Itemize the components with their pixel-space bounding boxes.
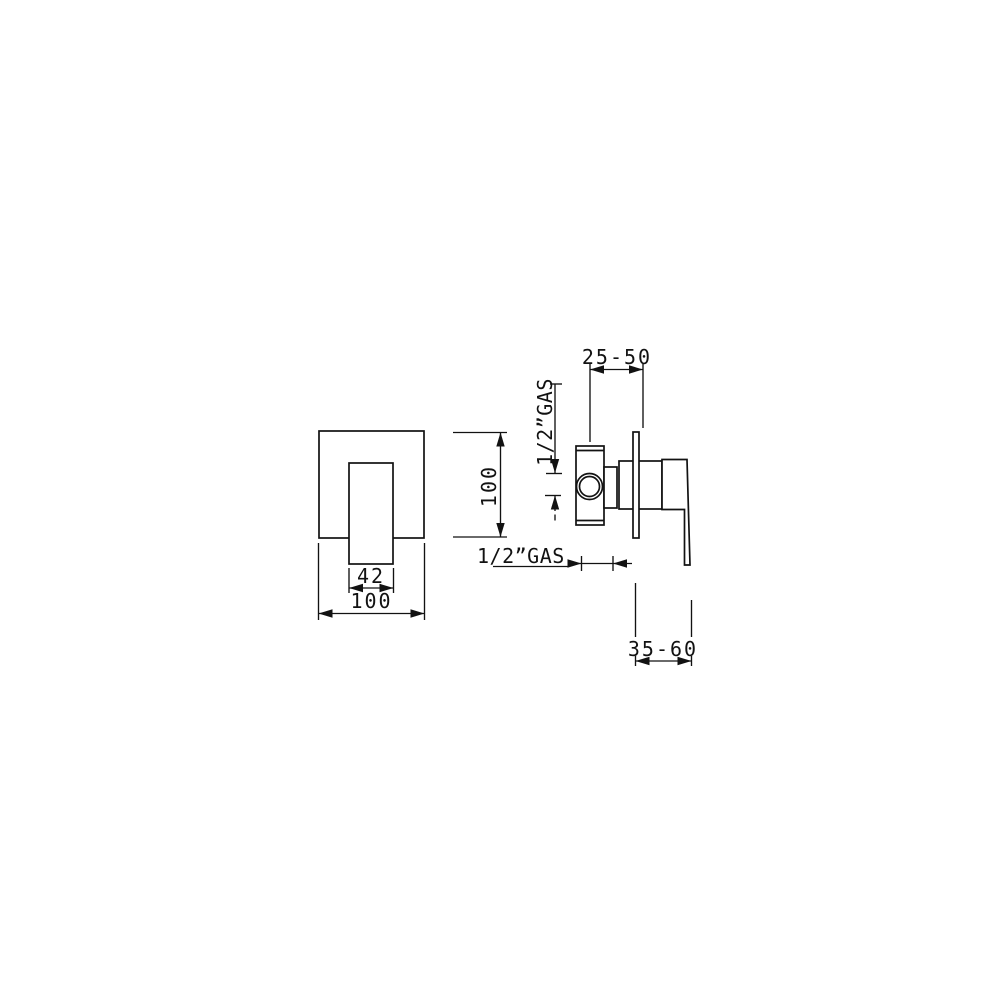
arrowhead (613, 559, 627, 567)
arrowhead (319, 609, 333, 617)
wall-plate-side (633, 432, 639, 538)
lever-handle-front (349, 463, 393, 564)
dimension-projection: 35-60 (628, 583, 698, 666)
technical-drawing-page: 42 100 100 25-50 (0, 0, 1000, 1000)
dimension-top-thread: 1/2”GAS (533, 378, 562, 520)
arrowhead (496, 433, 504, 447)
handle-width-label: 42 (357, 564, 385, 588)
side-view (576, 432, 690, 565)
dimension-plate-height: 100 (453, 433, 507, 538)
handle-hub-side (619, 461, 662, 509)
recess-depth-label: 25-50 (582, 345, 652, 369)
valve-neck (604, 467, 617, 508)
plate-width-label: 100 (350, 589, 392, 613)
projection-label: 35-60 (628, 637, 698, 661)
dimension-bottom-thread: 1/2”GAS (477, 544, 632, 571)
lever-handle-side (662, 460, 690, 566)
arrowhead (496, 523, 504, 537)
inlet-port-outer (577, 474, 603, 500)
bottom-thread-label: 1/2”GAS (477, 544, 565, 568)
technical-drawing-canvas: 42 100 100 25-50 (0, 0, 1000, 1000)
arrowhead (411, 609, 425, 617)
arrowhead (568, 559, 582, 567)
front-view (319, 431, 424, 564)
plate-height-label: 100 (477, 465, 501, 507)
top-thread-label: 1/2”GAS (533, 378, 557, 466)
dimension-recess-depth: 25-50 (582, 345, 652, 442)
